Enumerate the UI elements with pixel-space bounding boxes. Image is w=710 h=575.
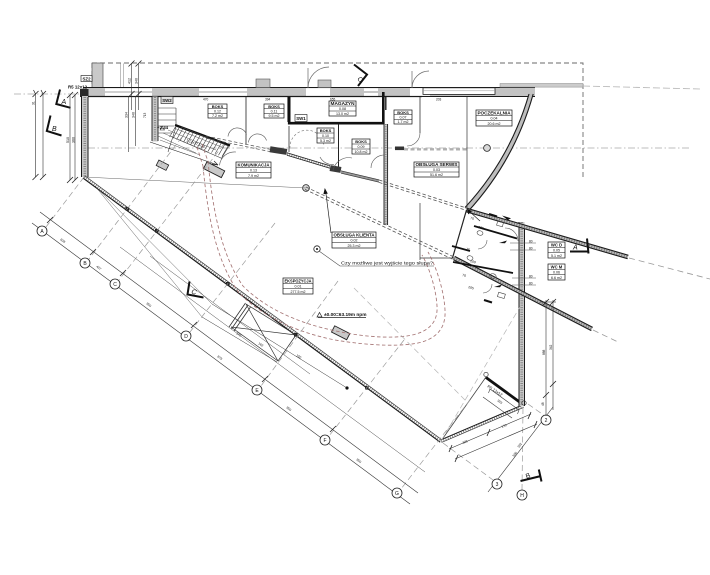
svg-text:SZ2: SZ2: [82, 76, 91, 81]
svg-text:MAGAZYN: MAGAZYN: [331, 101, 355, 106]
svg-text:412: 412: [128, 78, 132, 84]
svg-text:0.04: 0.04: [491, 117, 498, 121]
svg-text:0.13: 0.13: [250, 169, 257, 173]
svg-text:340: 340: [135, 78, 139, 84]
svg-text:G: G: [395, 491, 399, 497]
svg-text:BOKS: BOKS: [355, 139, 367, 144]
svg-text:BOKS: BOKS: [397, 110, 409, 115]
svg-text:9.5 m2: 9.5 m2: [269, 114, 280, 118]
svg-text:20.6 m2: 20.6 m2: [488, 122, 501, 126]
svg-text:±0.00=63.19m npm: ±0.00=63.19m npm: [324, 312, 367, 318]
svg-text:WC M: WC M: [551, 264, 563, 269]
svg-text:A: A: [572, 245, 578, 252]
svg-text:470: 470: [203, 98, 209, 102]
svg-text:13.0 m2: 13.0 m2: [336, 112, 349, 116]
svg-text:0.10: 0.10: [322, 134, 329, 138]
svg-text:0.06: 0.06: [553, 271, 560, 275]
svg-text:A: A: [61, 99, 67, 106]
svg-text:888: 888: [542, 349, 546, 355]
svg-text:C: C: [113, 282, 117, 288]
svg-text:BOKS: BOKS: [320, 128, 332, 133]
svg-text:80: 80: [529, 240, 533, 244]
svg-text:10.8 m2: 10.8 m2: [355, 150, 368, 154]
svg-text:655: 655: [330, 98, 336, 102]
svg-text:R5 12x12: R5 12x12: [68, 85, 88, 90]
svg-text:0.03: 0.03: [433, 168, 440, 172]
svg-text:3: 3: [496, 482, 499, 488]
svg-text:203: 203: [436, 98, 442, 102]
svg-text:7.2 m2: 7.2 m2: [212, 114, 223, 118]
svg-text:80: 80: [529, 282, 533, 286]
svg-text:+2.34: +2.34: [157, 125, 169, 130]
svg-text:80: 80: [529, 275, 533, 279]
svg-text:0.01: 0.01: [295, 285, 302, 289]
svg-text:BOKS: BOKS: [212, 104, 224, 109]
svg-text:BOKS: BOKS: [268, 104, 280, 109]
svg-text:360: 360: [72, 137, 76, 143]
svg-text:WC D: WC D: [551, 242, 562, 247]
svg-text:80: 80: [529, 247, 533, 251]
svg-text:713: 713: [143, 112, 147, 118]
svg-text:6.6 m2: 6.6 m2: [551, 276, 562, 280]
svg-text:SW2: SW2: [162, 98, 172, 103]
svg-text:5.3 m2: 5.3 m2: [320, 139, 331, 143]
svg-text:1.7 m2: 1.7 m2: [398, 120, 409, 124]
svg-text:0.05: 0.05: [553, 249, 560, 253]
svg-text:KOMUNIKACJA: KOMUNIKACJA: [238, 162, 271, 167]
svg-text:OBSŁUGA KLIENTA: OBSŁUGA KLIENTA: [334, 232, 376, 237]
svg-text:394: 394: [265, 98, 271, 102]
svg-text:0.11: 0.11: [271, 110, 278, 114]
svg-text:7.9 m2: 7.9 m2: [248, 174, 259, 178]
svg-text:0.07: 0.07: [400, 116, 407, 120]
svg-text:0.12: 0.12: [214, 110, 221, 114]
svg-text:51.6 m2: 51.6 m2: [430, 173, 443, 177]
svg-text:510: 510: [66, 137, 70, 143]
svg-text:B: B: [52, 126, 57, 133]
svg-text:25.3 m2: 25.3 m2: [348, 244, 361, 248]
svg-text:EKSPOZYCJA: EKSPOZYCJA: [285, 278, 312, 283]
svg-text:334: 334: [125, 112, 129, 118]
svg-text:277.5 m2: 277.5 m2: [291, 290, 306, 294]
svg-text:0.08: 0.08: [339, 107, 346, 111]
svg-text:SW1: SW1: [296, 116, 306, 121]
svg-text:5.1 m2: 5.1 m2: [551, 254, 562, 258]
svg-text:2: 2: [545, 418, 548, 424]
svg-text:48: 48: [541, 402, 545, 406]
svg-text:31: 31: [32, 101, 36, 105]
svg-text:0.09: 0.09: [358, 145, 365, 149]
svg-text:Czy możliwe jest wyjście tego: Czy możliwe jest wyjście tego słupa?: [341, 261, 434, 266]
svg-text:0.02: 0.02: [351, 239, 358, 243]
svg-text:OBSŁUGA SERWIS: OBSŁUGA SERWIS: [416, 162, 458, 167]
svg-text:D: D: [184, 334, 188, 340]
svg-text:342: 342: [549, 344, 553, 350]
svg-text:F: F: [323, 438, 326, 444]
svg-text:POCZEKALNIA: POCZEKALNIA: [478, 110, 512, 115]
svg-text:340: 340: [132, 112, 136, 118]
svg-text:H: H: [520, 493, 524, 499]
